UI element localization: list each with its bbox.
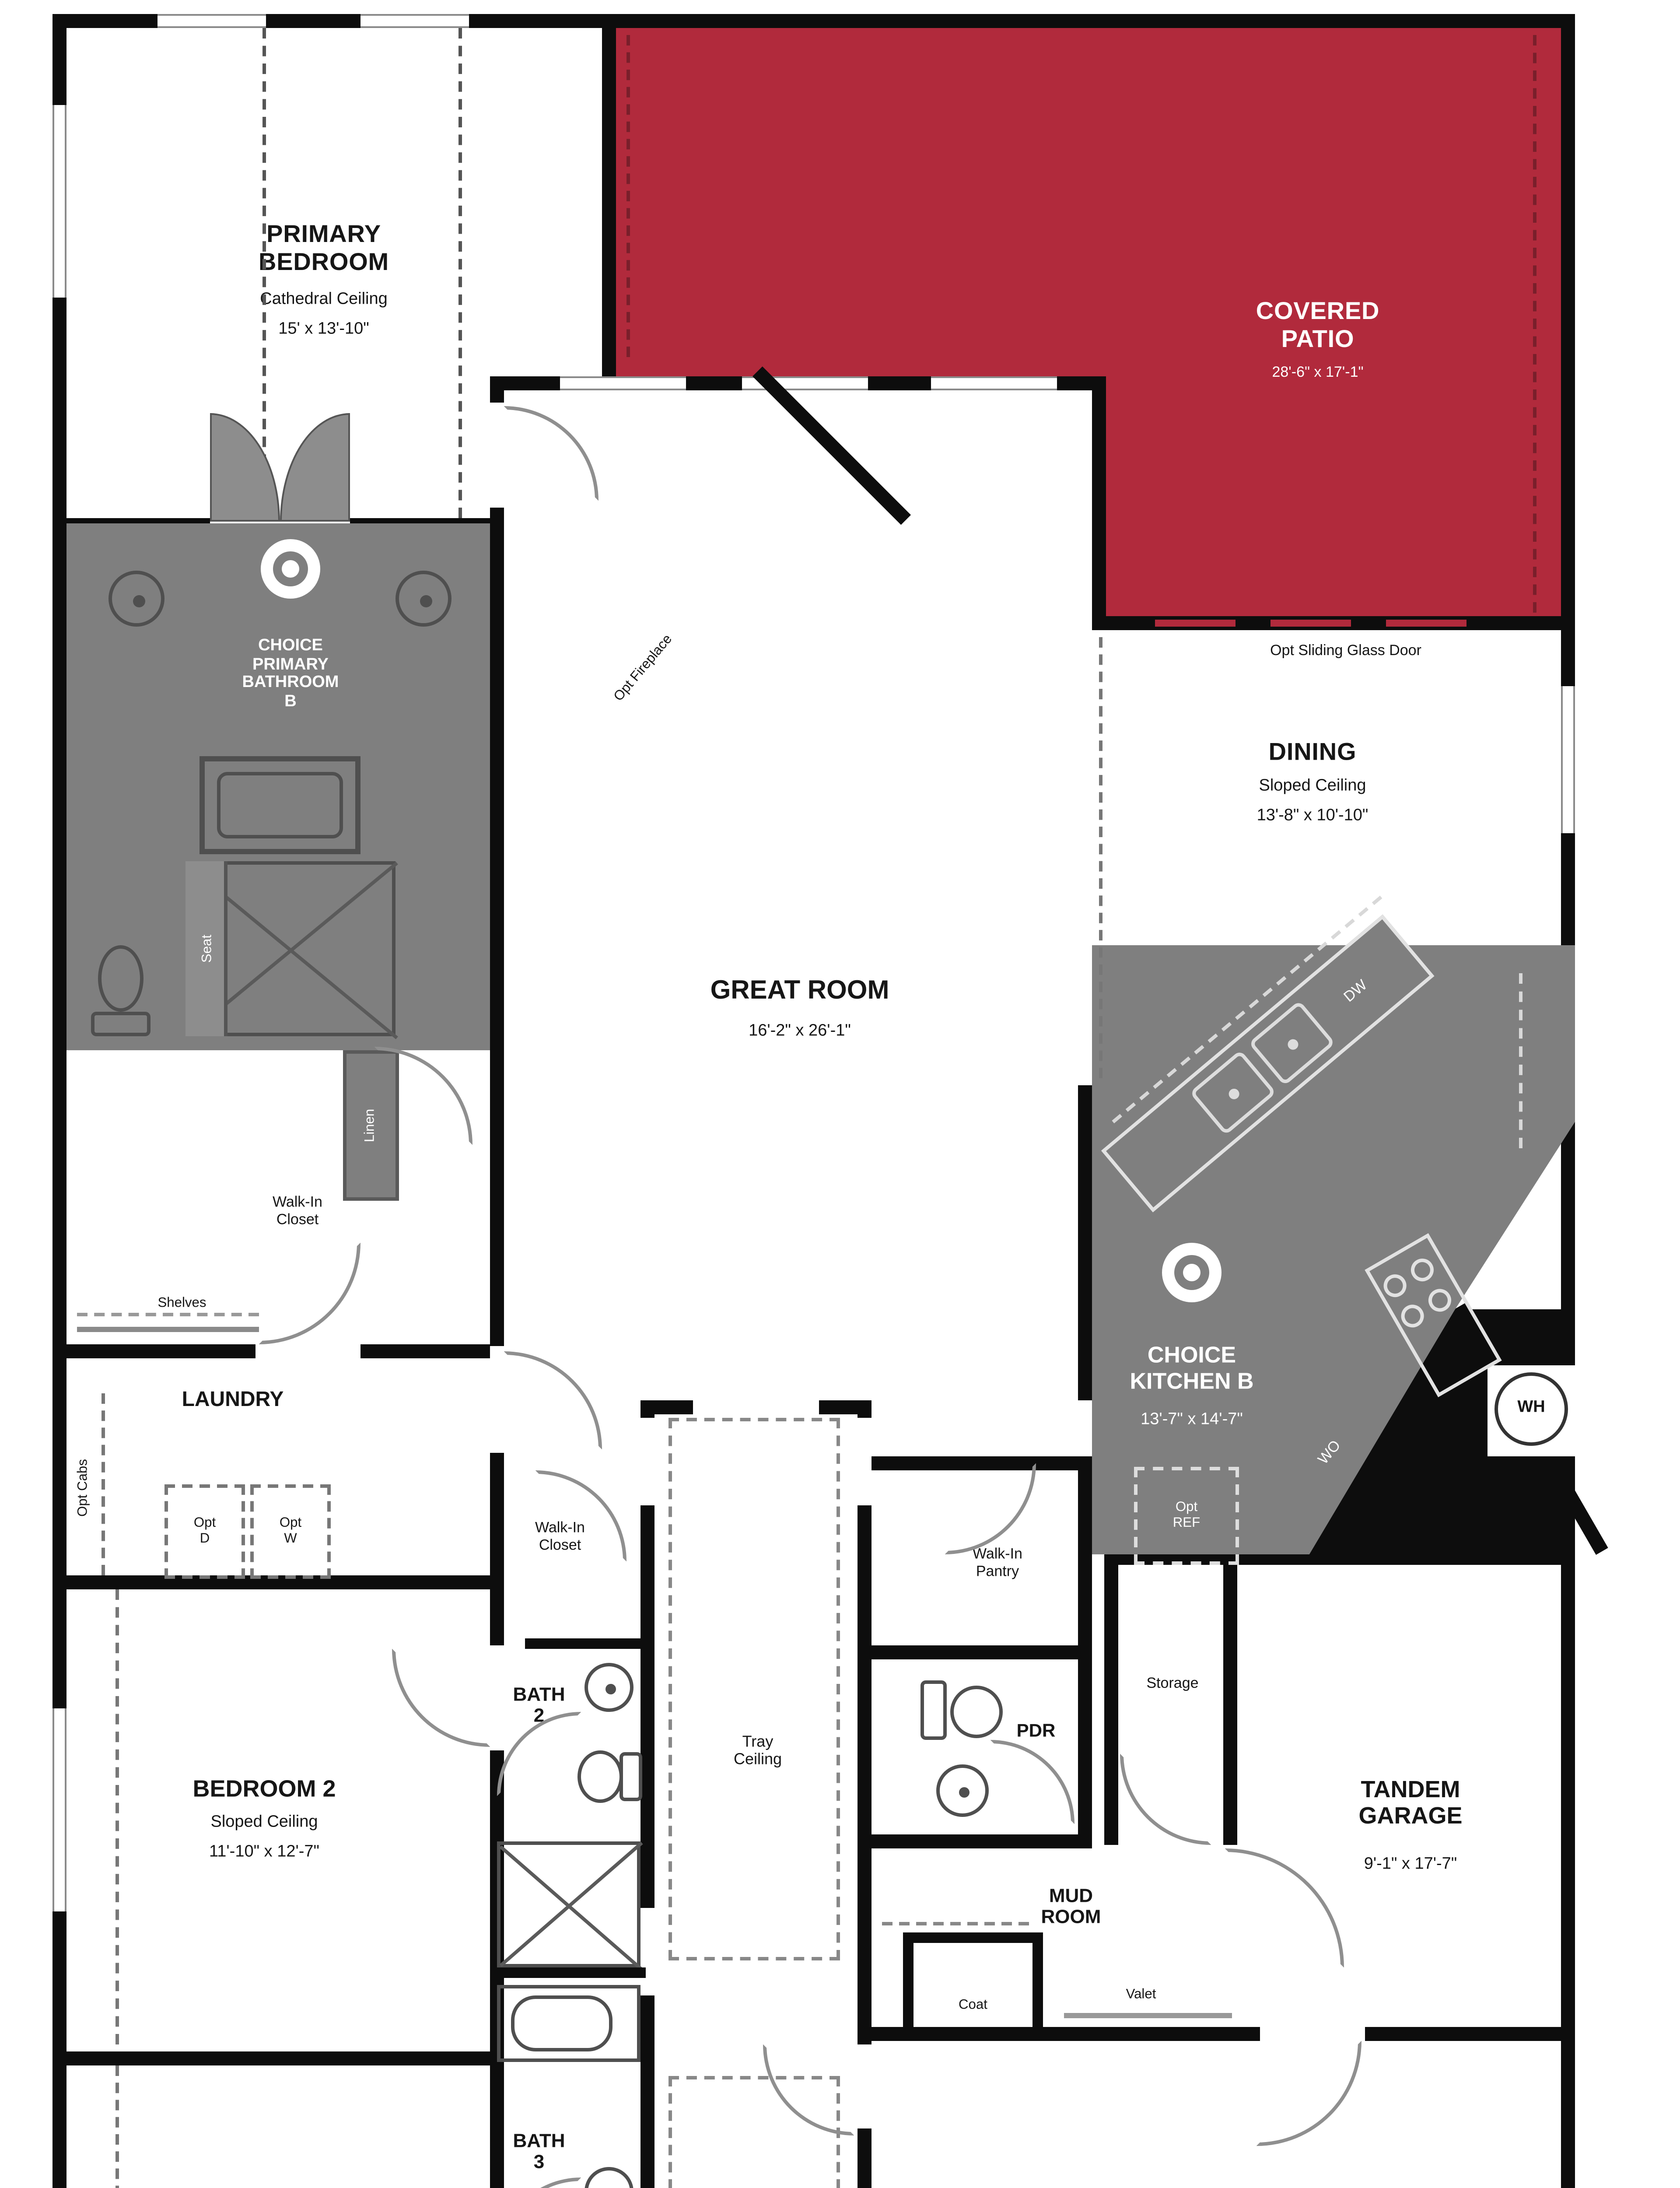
sliding-door-glass-1 xyxy=(1155,620,1235,627)
window-primary-2 xyxy=(360,14,469,28)
toilet-tank-icon xyxy=(91,1012,150,1036)
dining-label: DINING xyxy=(1269,739,1357,766)
opt-sliding-glass-door-label: Opt Sliding Glass Door xyxy=(1270,643,1421,659)
wall-central-2 xyxy=(490,508,504,1346)
covered-patio-label: COVERED PATIO xyxy=(1256,298,1380,354)
wall-hall-right-2 xyxy=(857,1505,871,2044)
opt-d-label: Opt D xyxy=(194,1516,216,1547)
tray-hall-label: Tray Ceiling xyxy=(734,1732,782,1768)
choice-primary-bathroom-icon xyxy=(261,539,320,599)
wall-hall-left-3 xyxy=(640,1995,654,2188)
tub-inner-icon xyxy=(217,772,343,838)
mud-room-label: MUD ROOM xyxy=(1041,1886,1101,1929)
bedroom2-dims: 11'-10" x 12'-7" xyxy=(209,1844,319,1863)
toilet-icon xyxy=(577,1750,623,1803)
door-arc xyxy=(945,1463,1036,1554)
mud-bench-dash xyxy=(882,1922,1029,1925)
choice-kitchen-dims: 13'-7" x 14'-7" xyxy=(1141,1412,1243,1431)
toilet-icon xyxy=(98,945,143,1012)
choice-kitchen-icon xyxy=(1162,1243,1221,1302)
storage-label: Storage xyxy=(1146,1676,1198,1692)
patio-column-line-left xyxy=(626,35,630,357)
door-arc xyxy=(259,1243,360,1344)
burner-icon xyxy=(1407,1255,1438,1286)
wall-garage-west xyxy=(857,2128,871,2188)
wh-label: WH xyxy=(1517,1400,1545,1419)
coat-closet-left xyxy=(903,1932,913,2027)
wall-storage-left xyxy=(1104,1551,1118,1845)
covered-patio-area-lower xyxy=(1106,376,1575,630)
opt-w-label: Opt W xyxy=(280,1516,301,1547)
burner-icon xyxy=(1424,1285,1455,1316)
wall-patio-right xyxy=(1561,14,1575,630)
bedroom2-ceiling: Sloped Ceiling xyxy=(210,1815,318,1834)
wall-outer-top xyxy=(52,14,616,28)
wall-mud-bottom-l xyxy=(871,2027,1260,2041)
floor-plan: COVERED PATIO 28'-6" x 17'-1" xyxy=(0,0,1680,2188)
toilet-tank-icon xyxy=(619,1752,642,1801)
wall-mud-bottom-r xyxy=(1365,2027,1575,2041)
covered-patio-area xyxy=(602,14,1575,376)
tub-inner-icon xyxy=(511,1995,612,2051)
kitchen-right-dash xyxy=(1519,973,1522,1148)
primary-bedroom-label: PRIMARY BEDROOM xyxy=(259,221,389,277)
wall-hall-top-stub-r xyxy=(819,1400,871,1414)
window-primary-left xyxy=(52,105,66,298)
sliding-door-glass-3 xyxy=(1386,620,1466,627)
toilet-icon xyxy=(950,1686,1003,1738)
wall-closet-laundry-l xyxy=(66,1344,255,1358)
dining-kitchen-dash xyxy=(1099,637,1102,1078)
wall-pdr-bottom xyxy=(871,1834,1092,1848)
walk-in-pantry-label: Walk-In Pantry xyxy=(973,1546,1022,1580)
choice-primary-bathroom-label: CHOICE PRIMARY BATHROOM B xyxy=(242,638,339,713)
wall-patio-top xyxy=(609,14,1575,28)
window-primary-1 xyxy=(157,14,266,28)
primary-ceiling-dash-2 xyxy=(458,28,462,518)
wall-hall-left-2 xyxy=(640,1505,654,1908)
wall-central-3 xyxy=(490,1453,504,1645)
sliding-door-glass-2 xyxy=(1270,620,1351,627)
opt-fireplace-label: Opt Fireplace xyxy=(612,632,676,705)
bath3-label: BATH 3 xyxy=(513,2131,565,2174)
wall-bath2-bath3 xyxy=(490,1967,646,1978)
door-arc xyxy=(1120,1754,1211,1845)
tray-ceiling-outline xyxy=(668,1418,840,1960)
dining-ceiling: Sloped Ceiling xyxy=(1259,778,1366,797)
valet-line xyxy=(1064,2013,1232,2018)
bedroom2-label: BEDROOM 2 xyxy=(192,1776,336,1802)
choice-kitchen-label: CHOICE KITCHEN B xyxy=(1130,1343,1253,1395)
wall-storage-right xyxy=(1223,1551,1237,1845)
wall-central-1 xyxy=(490,376,504,403)
door-arc xyxy=(504,1351,602,1449)
dining-dims: 13'-8" x 10'-10" xyxy=(1257,808,1368,827)
primary-bedroom-dims: 15' x 13'-10" xyxy=(278,322,369,340)
closet-rod-dash xyxy=(77,1313,259,1316)
bedroom3-slope-dash xyxy=(115,2065,119,2188)
pdr-label: PDR xyxy=(1017,1722,1056,1743)
wall-closet-bath2 xyxy=(525,1638,646,1649)
great-room-dims: 16'-2" x 26'-1" xyxy=(749,1024,851,1042)
seat-label: Seat xyxy=(200,935,216,963)
burner-icon xyxy=(1379,1270,1410,1301)
door-arc xyxy=(374,1047,472,1145)
tandem-garage-dims: 9'-1" x 17'-7" xyxy=(1364,1857,1457,1876)
sink-icon xyxy=(584,2167,633,2188)
door-arc xyxy=(392,1649,490,1747)
primary-ceiling-dash-1 xyxy=(262,28,266,518)
window-greatroom-1 xyxy=(560,376,686,390)
sink-drain-icon xyxy=(605,1684,616,1694)
tandem-garage-label: TANDEM GARAGE xyxy=(1358,1776,1462,1830)
door-arc xyxy=(1225,1848,1344,1967)
wall-bedroom-patio xyxy=(602,14,616,390)
covered-patio-dims: 28'-6" x 17'-1" xyxy=(1272,365,1363,381)
door-arc xyxy=(497,2177,581,2188)
shelves-label: Shelves xyxy=(158,1296,206,1311)
coat-closet-top xyxy=(903,1932,1043,1943)
dw-label: DW xyxy=(1341,977,1371,1006)
valet-label: Valet xyxy=(1126,1988,1156,2003)
bedroom2-slope-dash xyxy=(115,1589,119,2044)
door-arc xyxy=(990,1740,1074,1824)
wall-closet-laundry-r xyxy=(360,1344,490,1358)
primary-bath-door-right xyxy=(280,413,350,522)
walk-in-closet-primary-label: Walk-In Closet xyxy=(273,1195,322,1228)
sink-drain-icon xyxy=(420,595,432,607)
door-arc xyxy=(497,1712,581,1796)
primary-bedroom-ceiling: Cathedral Ceiling xyxy=(260,292,388,311)
opt-ref-label: Opt REF xyxy=(1173,1501,1200,1531)
patio-column-line-right xyxy=(1533,35,1536,613)
sink-drain-icon xyxy=(959,1787,969,1798)
wall-pdr-top xyxy=(871,1645,1092,1659)
burner-icon xyxy=(1397,1301,1428,1332)
wall-hall-top-stub-l xyxy=(640,1400,693,1414)
door-arc xyxy=(535,1470,626,1561)
great-room-label: GREAT ROOM xyxy=(710,978,889,1007)
door-arc xyxy=(504,406,598,501)
closet-shelf-line xyxy=(77,1327,259,1332)
sink-drain-icon xyxy=(133,595,145,607)
coat-label: Coat xyxy=(959,1998,987,2013)
door-arc xyxy=(1256,2041,1361,2146)
wall-bed2-bed3 xyxy=(66,2051,490,2065)
toilet-tank-icon xyxy=(920,1680,947,1740)
opt-cabs-label: Opt Cabs xyxy=(76,1459,91,1517)
wall-patio-step xyxy=(1092,376,1106,630)
window-dining xyxy=(1561,686,1575,833)
opt-cabs-dash xyxy=(101,1393,105,1575)
wall-kitchen-left xyxy=(1078,1085,1092,1400)
window-bedroom2 xyxy=(52,1708,66,1911)
primary-bath-door-left xyxy=(210,413,280,522)
coat-closet-right xyxy=(1032,1932,1043,2027)
window-greatroom-3 xyxy=(931,376,1057,390)
laundry-label: LAUNDRY xyxy=(182,1389,284,1412)
